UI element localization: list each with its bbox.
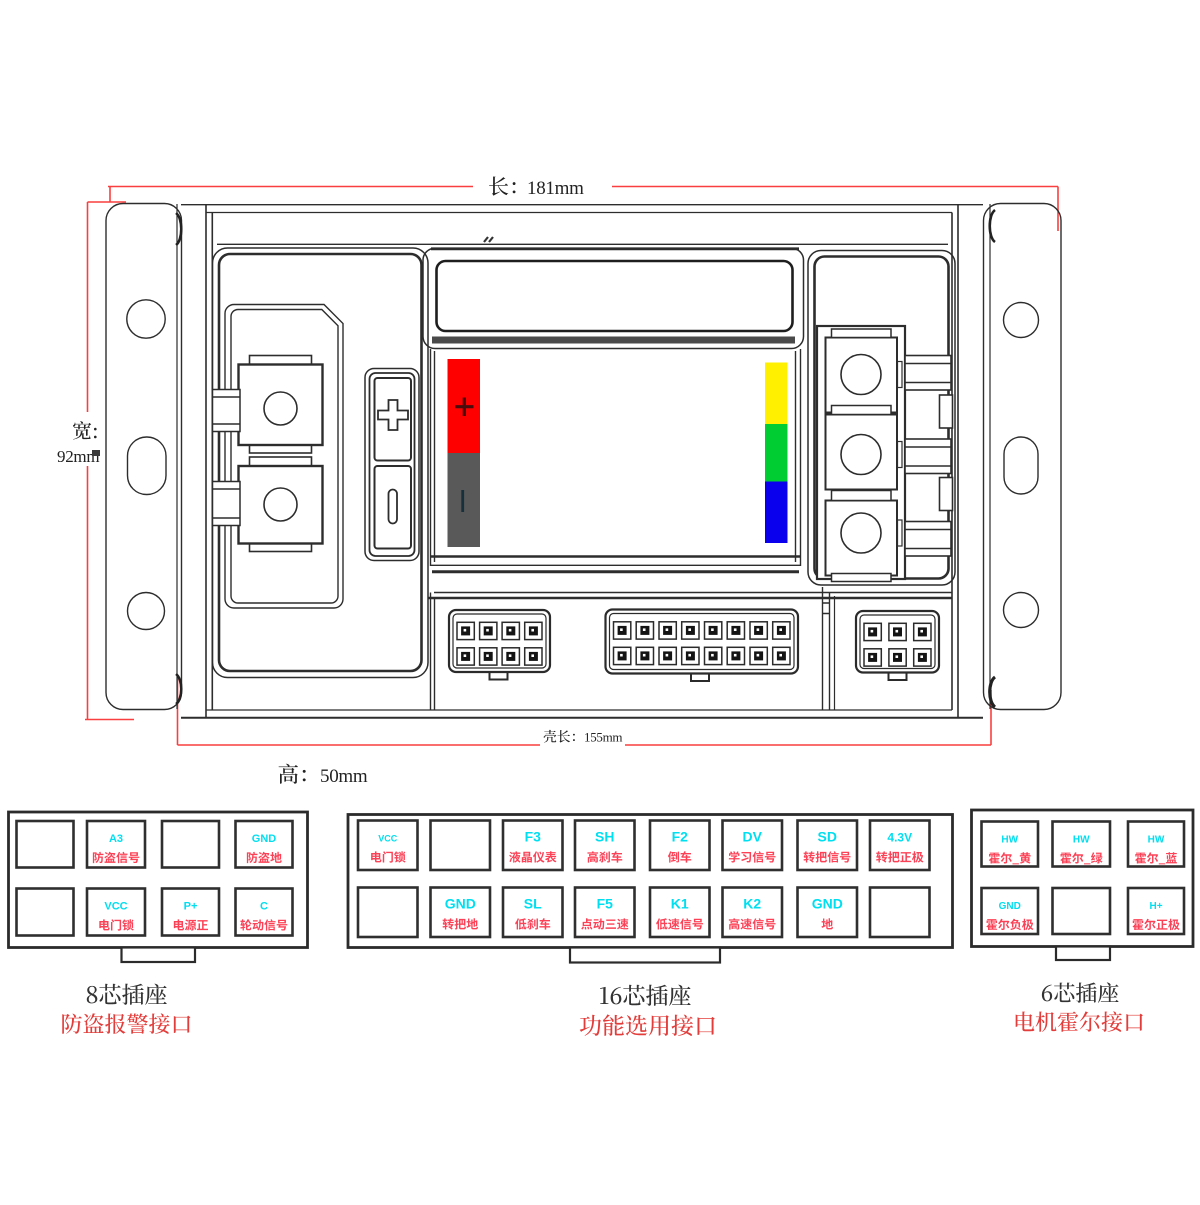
svg-text:155mm: 155mm xyxy=(584,730,622,745)
svg-text:4.3V: 4.3V xyxy=(887,831,912,845)
svg-text:VCC: VCC xyxy=(104,901,127,913)
svg-text:C: C xyxy=(260,901,268,913)
svg-text:SD: SD xyxy=(818,829,837,845)
svg-text:F5: F5 xyxy=(597,896,614,912)
svg-text:H+: H+ xyxy=(1149,901,1162,912)
svg-text:A3: A3 xyxy=(109,833,123,845)
svg-text:HW: HW xyxy=(1073,835,1090,846)
svg-text:GND: GND xyxy=(445,896,476,912)
svg-text:GND: GND xyxy=(812,896,843,912)
svg-text:HW: HW xyxy=(1001,835,1018,846)
svg-text:92mm: 92mm xyxy=(57,447,99,466)
svg-text:SL: SL xyxy=(524,896,542,912)
svg-text:DV: DV xyxy=(743,829,763,845)
svg-text:F3: F3 xyxy=(525,829,542,845)
svg-text:50mm: 50mm xyxy=(320,766,368,787)
svg-text:SH: SH xyxy=(595,829,614,845)
svg-text:K1: K1 xyxy=(671,896,689,912)
svg-text:GND: GND xyxy=(252,833,277,845)
svg-text:GND: GND xyxy=(999,901,1021,912)
svg-text:181mm: 181mm xyxy=(527,178,584,199)
svg-text:VCC: VCC xyxy=(378,834,398,844)
svg-text:P+: P+ xyxy=(184,901,198,913)
svg-text:F2: F2 xyxy=(672,829,689,845)
svg-text:K2: K2 xyxy=(743,896,761,912)
svg-text:HW: HW xyxy=(1148,835,1165,846)
